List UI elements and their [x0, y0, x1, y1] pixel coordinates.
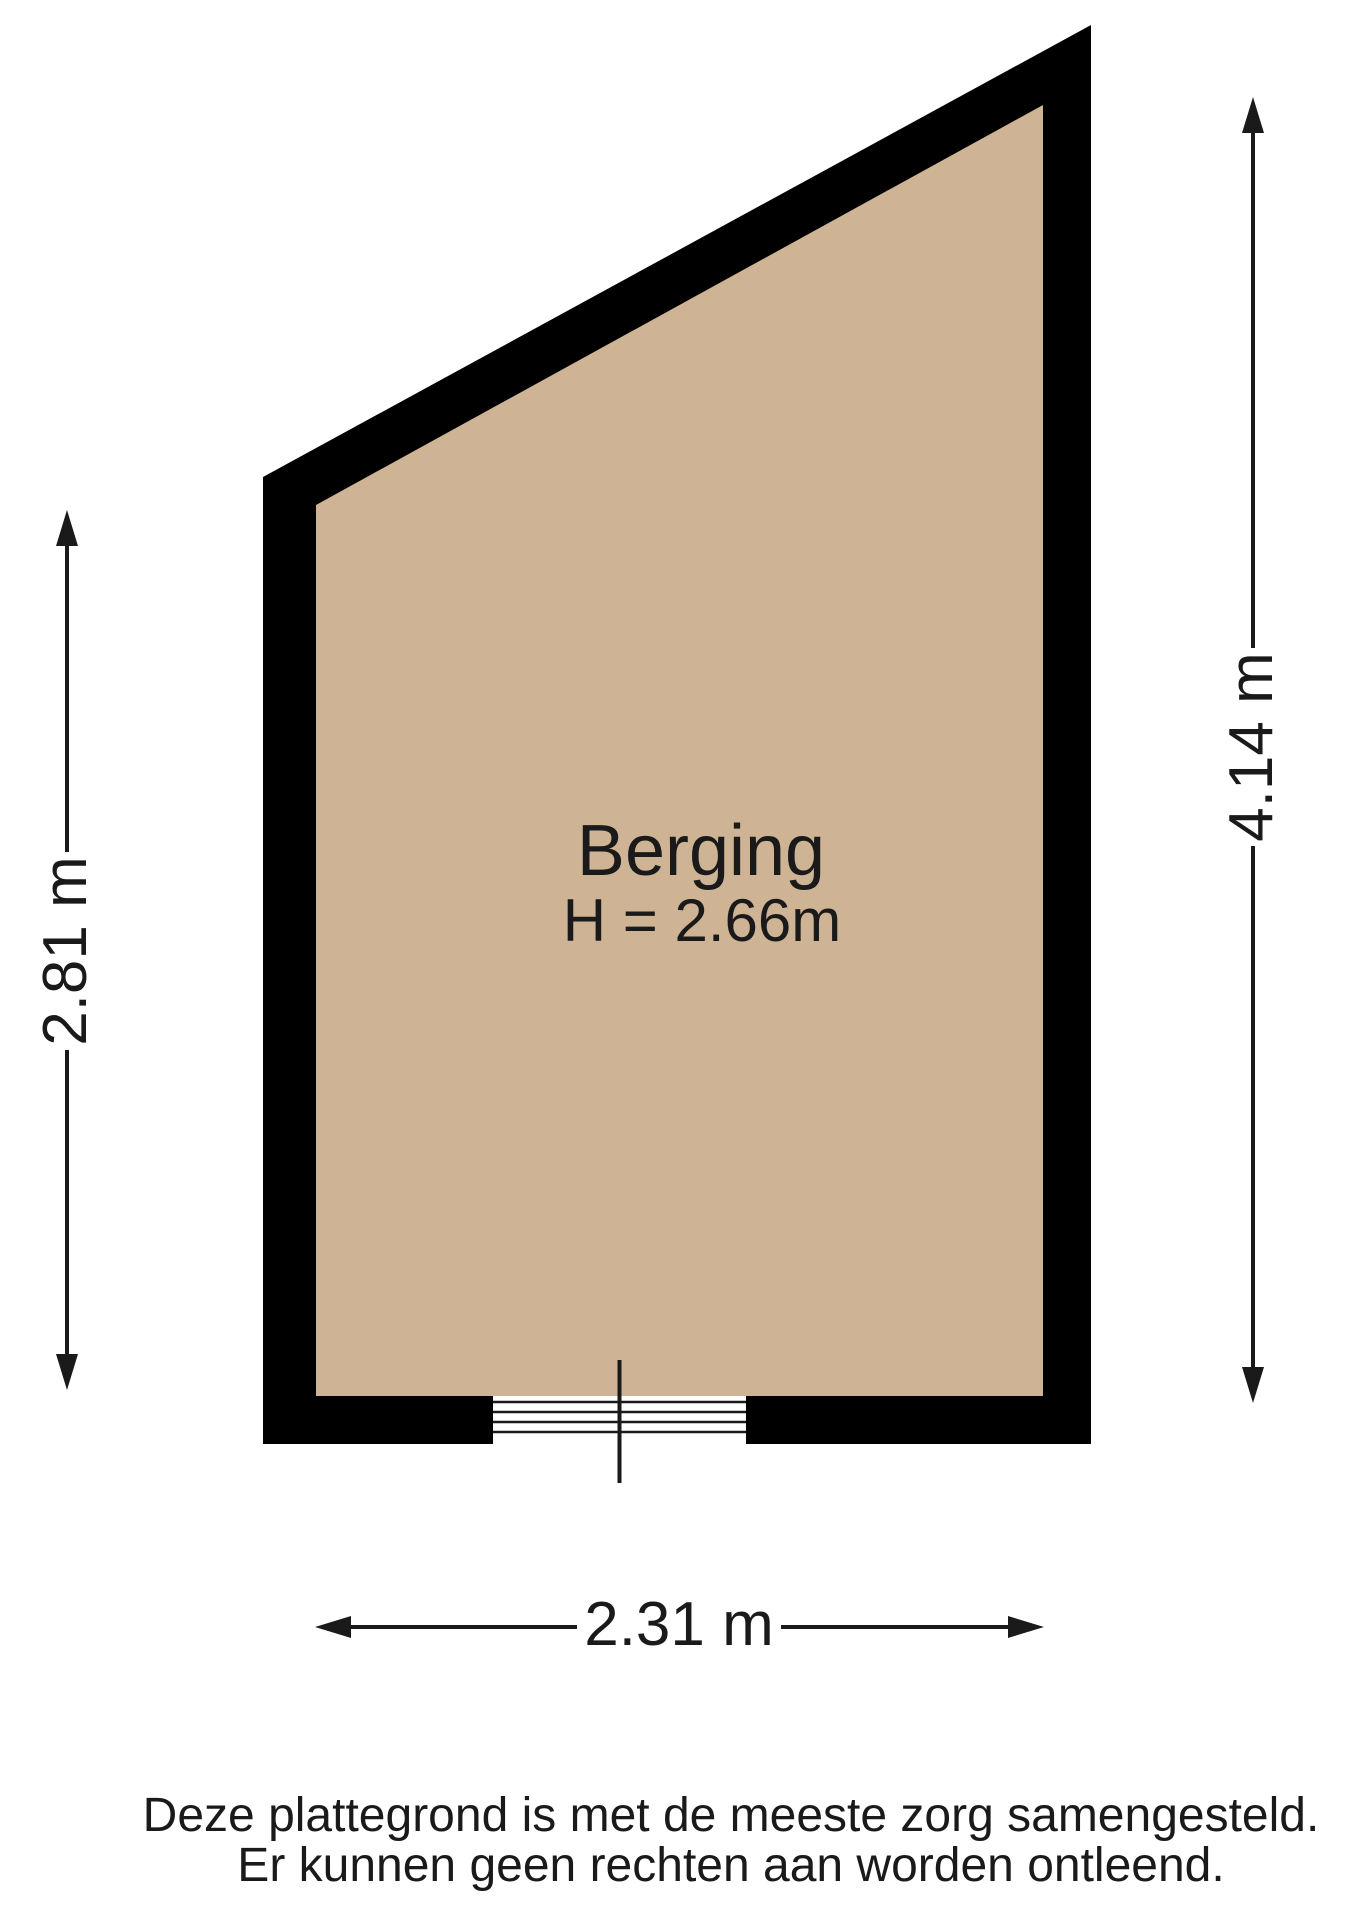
arrowhead-left-icon	[315, 1616, 351, 1638]
arrowhead-down-icon	[56, 1354, 78, 1390]
arrowhead-right-icon	[1008, 1616, 1044, 1638]
room-name-label: Berging	[577, 815, 825, 887]
arrowhead-up-icon	[56, 510, 78, 546]
footer-disclaimer-line1: Deze plattegrond is met de meeste zorg s…	[143, 1792, 1320, 1840]
arrowhead-down-icon	[1242, 1367, 1264, 1403]
floor-plan-page: Berging H = 2.66m 2.81 m 4.14 m 2.31 m D…	[0, 0, 1358, 1920]
dimension-bottom-label: 2.31 m	[584, 1594, 774, 1656]
arrowhead-up-icon	[1242, 97, 1264, 133]
room-ceiling-height-label: H = 2.66m	[563, 891, 841, 951]
dimension-right-label: 4.14 m	[1221, 652, 1283, 842]
dimension-left-label: 2.81 m	[35, 856, 97, 1046]
footer-disclaimer-line2: Er kunnen geen rechten aan worden ontlee…	[237, 1842, 1224, 1890]
